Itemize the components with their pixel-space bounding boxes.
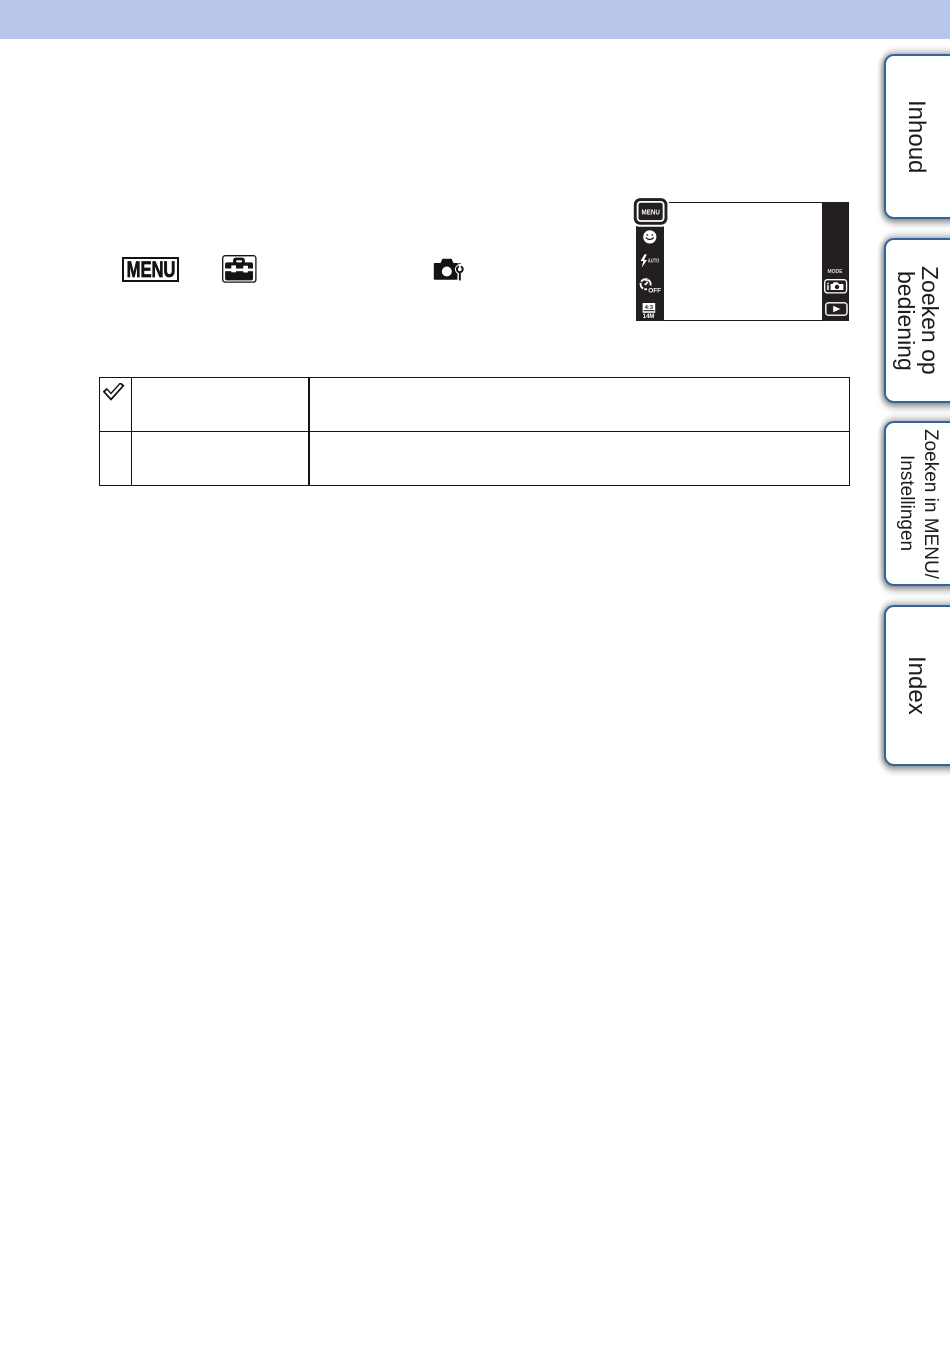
- svg-text:OFF: OFF: [648, 287, 661, 294]
- svg-text:14M: 14M: [643, 314, 655, 319]
- svg-text:MENU: MENU: [642, 209, 660, 217]
- svg-text:AUTO: AUTO: [647, 258, 659, 263]
